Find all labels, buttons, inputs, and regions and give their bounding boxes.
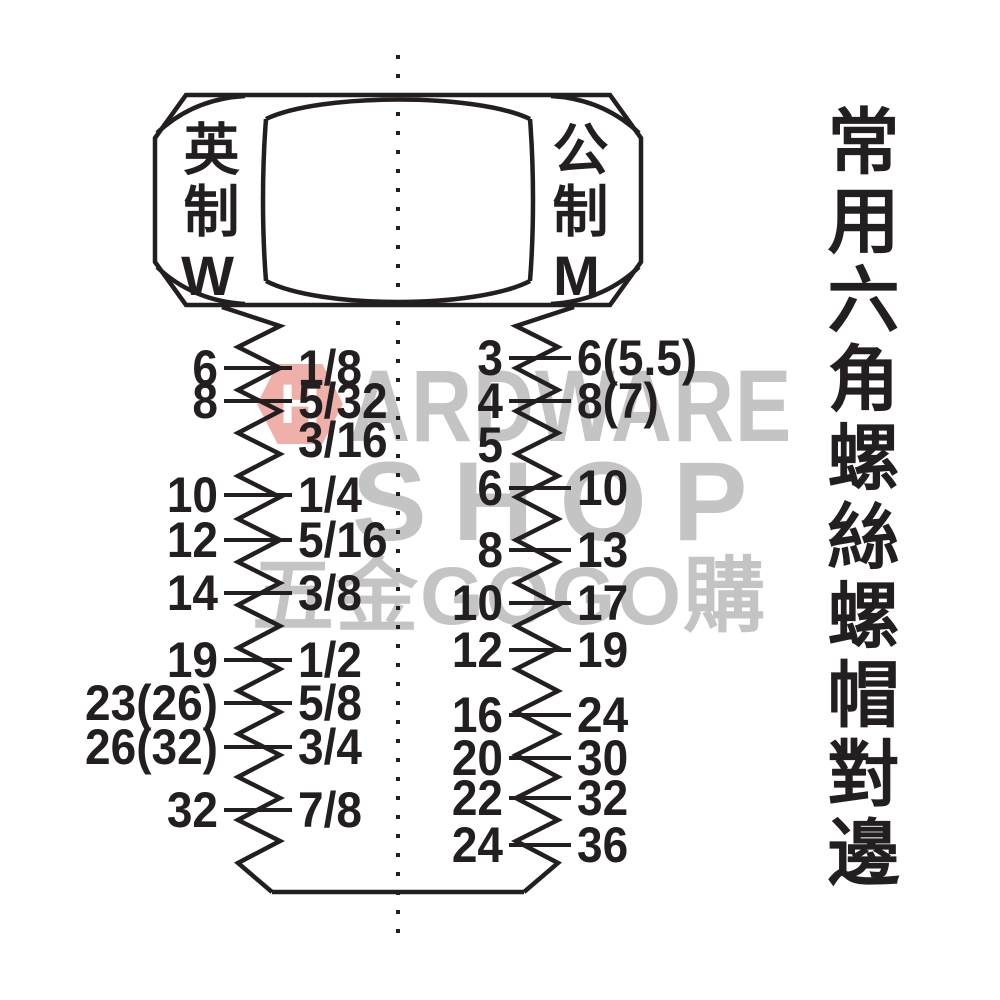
leader-line [224, 591, 292, 595]
table-row: 22 32 [345, 776, 633, 820]
m-af-mm: 10 [577, 463, 628, 513]
m-size: 10 [358, 578, 503, 628]
bolt-head-left-panel-line [263, 119, 266, 281]
leader-line [509, 713, 571, 717]
leader-line [224, 538, 292, 542]
table-row: 5 [345, 423, 577, 467]
m-size: 22 [358, 773, 503, 823]
table-row: 12 19 [345, 628, 633, 672]
table-row: 14 3/8 [60, 571, 368, 615]
table-row: 10 1/4 [60, 473, 368, 517]
product-image: H ARDWARE SHOP 五金GOGO購 英制W 公制M 常用六 [0, 0, 1000, 1000]
leader-line [224, 366, 292, 370]
m-size: 24 [358, 820, 503, 870]
leader-line [509, 399, 571, 403]
table-row: 8 13 [345, 528, 633, 572]
m-af-mm: 32 [577, 773, 628, 823]
bolt-head-right-panel-line [530, 119, 533, 281]
m-af-mm: 19 [577, 625, 628, 675]
leader-line [224, 745, 292, 749]
table-row: 26(32) 3/4 [60, 725, 368, 769]
leader-line [224, 493, 292, 497]
m-size: 6 [358, 463, 503, 513]
m-af-mm: 36 [577, 820, 628, 870]
leader-line [509, 796, 571, 800]
metric-face-label: 公制M [548, 120, 604, 313]
bolt-head-top-chamfer-arc [266, 100, 530, 120]
w-af-mm: 26(32) [73, 722, 218, 772]
leader-line [509, 756, 571, 760]
m-af-mm: 13 [577, 525, 628, 575]
leader-line [509, 486, 571, 490]
m-size: 8 [358, 525, 503, 575]
table-row: 4 8(7) [345, 379, 666, 423]
m-af-mm: 17 [577, 578, 628, 628]
w-af-mm: 32 [73, 785, 218, 835]
page-title: 常用六角螺絲螺帽對邊 [820, 104, 892, 894]
w-af-mm: 14 [73, 568, 218, 618]
table-row: 6 10 [345, 466, 633, 510]
leader-line [224, 658, 292, 662]
leader-line [509, 601, 571, 605]
table-row: 32 7/8 [60, 788, 368, 832]
leader-line [224, 701, 292, 705]
table-row: 24 36 [345, 823, 633, 867]
leader-line [224, 399, 292, 403]
leader-line [509, 843, 571, 847]
m-af-mm: 8(7) [577, 376, 659, 426]
table-row: 10 17 [345, 581, 633, 625]
m-size: 12 [358, 625, 503, 675]
imperial-face-label: 英制W [179, 120, 235, 313]
leader-line [509, 356, 571, 360]
w-af-mm: 12 [73, 515, 218, 565]
leader-line [509, 648, 571, 652]
leader-line [224, 808, 292, 812]
leader-line [509, 548, 571, 552]
